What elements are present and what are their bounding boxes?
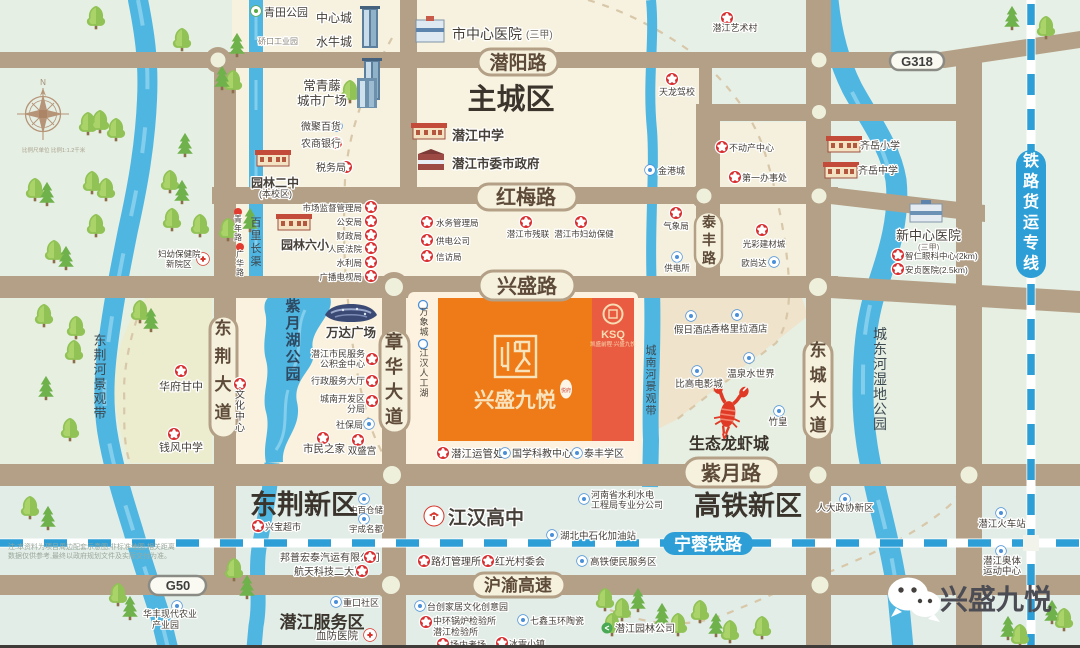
- svg-text:城东河湿地公园: 城东河湿地公园: [873, 326, 887, 432]
- svg-text:红光村委会: 红光村委会: [495, 555, 545, 568]
- svg-text:潜江园林公司: 潜江园林公司: [615, 622, 675, 635]
- svg-text:紫月湖公园: 紫月湖公园: [284, 298, 300, 383]
- svg-text:(本校区): (本校区): [259, 188, 292, 199]
- svg-text:泰丰路: 泰丰路: [701, 214, 717, 266]
- svg-text:台创家居文化创意园: 台创家居文化创意园: [427, 601, 508, 612]
- svg-text:不动产中心: 不动产中心: [729, 142, 774, 153]
- svg-text:数据仅供参考,最终以政府规划文件及实际交付为准。: 数据仅供参考,最终以政府规划文件及实际交付为准。: [8, 551, 171, 560]
- svg-text:潜江市残联: 潜江市残联: [507, 229, 550, 239]
- svg-text:水利局: 水利局: [336, 258, 362, 268]
- svg-text:红梅路: 红梅路: [496, 185, 557, 209]
- svg-text:宇成名都: 宇成名都: [349, 524, 384, 534]
- svg-text:假日酒店: 假日酒店: [674, 324, 712, 336]
- svg-text:工程局专业分公司: 工程局专业分公司: [591, 499, 663, 510]
- svg-text:主城区: 主城区: [467, 83, 554, 116]
- svg-text:宁蓉铁路: 宁蓉铁路: [674, 534, 743, 554]
- svg-text:潜江检验所: 潜江检验所: [433, 626, 478, 637]
- svg-text:N: N: [40, 78, 46, 87]
- svg-text:江汉人工湖: 江汉人工湖: [419, 348, 428, 398]
- svg-text:公积金中心: 公积金中心: [320, 358, 365, 369]
- svg-text:潜阳路: 潜阳路: [489, 51, 547, 74]
- svg-text:比高电影城: 比高电影城: [675, 378, 723, 390]
- svg-text:兴盛九悦: 兴盛九悦: [940, 583, 1052, 615]
- svg-text:新中心医院: 新中心医院: [896, 228, 961, 243]
- svg-text:注:本资料为项目周边配套示意图,非标准地图,相关距离: 注:本资料为项目周边配套示意图,非标准地图,相关距离: [8, 542, 175, 551]
- svg-text:兴盛九悦: 兴盛九悦: [474, 388, 556, 412]
- svg-text:广华路: 广华路: [236, 249, 244, 277]
- svg-text:产业园: 产业园: [152, 619, 179, 630]
- svg-text:潜江市委市政府: 潜江市委市政府: [452, 156, 540, 171]
- svg-text:青田公园: 青田公园: [264, 6, 308, 19]
- svg-text:万象城: 万象城: [419, 307, 428, 337]
- svg-text:妇幼保健院: 妇幼保健院: [158, 249, 201, 259]
- svg-text:光彩建材城: 光彩建材城: [743, 239, 786, 249]
- svg-text:东荆新区: 东荆新区: [250, 489, 358, 520]
- svg-text:广播电视局: 广播电视局: [319, 272, 362, 282]
- svg-text:运动中心: 运动中心: [983, 565, 1022, 577]
- svg-text:国学科教中心: 国学科教中心: [512, 447, 572, 460]
- svg-text:园林六小: 园林六小: [281, 237, 329, 252]
- svg-text:华丰现代农业: 华丰现代农业: [143, 608, 197, 619]
- svg-text:城市广场: 城市广场: [297, 93, 347, 108]
- svg-text:潜江艺术村: 潜江艺术村: [712, 22, 757, 33]
- svg-text:沪渝高速: 沪渝高速: [484, 575, 552, 595]
- svg-text:河南省水利水电: 河南省水利水电: [591, 489, 654, 500]
- svg-text:高铁便民服务区: 高铁便民服务区: [590, 556, 657, 568]
- svg-text:安贞医院(2.5km): 安贞医院(2.5km): [905, 265, 968, 275]
- svg-text:潜江市妇幼保健: 潜江市妇幼保健: [554, 229, 614, 239]
- svg-text:水牛城: 水牛城: [316, 34, 352, 49]
- svg-text:华府甘中: 华府甘中: [159, 379, 203, 393]
- svg-text:供电公司: 供电公司: [436, 236, 470, 246]
- svg-text:天龙驾校: 天龙驾校: [659, 86, 695, 97]
- svg-text:香格里拉酒店: 香格里拉酒店: [710, 323, 767, 335]
- svg-text:泰丰学区: 泰丰学区: [584, 447, 624, 460]
- svg-text:分局: 分局: [347, 404, 365, 414]
- svg-text:竹皇: 竹皇: [768, 416, 787, 428]
- svg-text:比例尺单位 比例1:1.2千米: 比例尺单位 比例1:1.2千米: [22, 146, 86, 154]
- svg-text:双盛宫: 双盛宫: [348, 445, 377, 457]
- svg-text:供电所: 供电所: [664, 263, 690, 273]
- svg-text:紫月路: 紫月路: [701, 461, 762, 485]
- svg-text:微聚百货: 微聚百货: [301, 120, 341, 133]
- svg-text:钱风中学: 钱风中学: [159, 440, 203, 454]
- svg-text:中环锅炉检验所: 中环锅炉检验所: [433, 615, 496, 626]
- svg-text:人大政协新区: 人大政协新区: [816, 502, 874, 514]
- svg-text:万达广场: 万达广场: [325, 325, 376, 340]
- svg-text:高铁新区: 高铁新区: [694, 490, 802, 521]
- svg-text:城南河景观带: 城南河景观带: [646, 344, 657, 417]
- svg-text:硚口工业园: 硚口工业园: [258, 36, 298, 46]
- svg-text:城南开发区: 城南开发区: [320, 393, 365, 404]
- svg-text:农商银行: 农商银行: [301, 137, 341, 150]
- svg-text:路灯管理所: 路灯管理所: [431, 555, 481, 568]
- svg-text:青年路: 青年路: [234, 214, 242, 242]
- svg-text:兴宝超市: 兴宝超市: [265, 521, 301, 532]
- svg-text:生态龙虾城: 生态龙虾城: [689, 434, 769, 453]
- svg-text:潜江火车站: 潜江火车站: [978, 518, 1026, 530]
- svg-text:潜江市民服务: 潜江市民服务: [311, 348, 365, 359]
- svg-text:气象局: 气象局: [663, 221, 689, 231]
- svg-text:齐岳小学: 齐岳小学: [860, 139, 900, 152]
- svg-text:人民法院: 人民法院: [328, 244, 363, 254]
- svg-text:悦府: 悦府: [561, 387, 571, 394]
- svg-text:潜江中学: 潜江中学: [452, 128, 504, 143]
- svg-text:G50: G50: [166, 578, 191, 593]
- svg-text:税务局: 税务局: [316, 161, 346, 174]
- svg-text:重口社区: 重口社区: [343, 597, 379, 608]
- svg-text:园林二中: 园林二中: [251, 175, 299, 190]
- svg-text:社保局: 社保局: [336, 419, 363, 430]
- svg-text:齐岳中学: 齐岳中学: [858, 164, 898, 177]
- svg-text:江汉高中: 江汉高中: [448, 506, 524, 529]
- svg-text:凯盛前程·兴盛九悦: 凯盛前程·兴盛九悦: [590, 340, 636, 348]
- svg-text:金港城: 金港城: [658, 165, 685, 176]
- svg-text:欧尚达: 欧尚达: [741, 258, 767, 268]
- svg-text:中心城: 中心城: [316, 10, 352, 25]
- svg-text:公安局: 公安局: [336, 217, 362, 227]
- svg-text:KSQ: KSQ: [601, 329, 625, 341]
- svg-text:潜江服务区: 潜江服务区: [280, 612, 365, 632]
- svg-text:行政服务大厅: 行政服务大厅: [311, 375, 365, 386]
- svg-text:G318: G318: [901, 54, 933, 69]
- svg-text:水务管理局: 水务管理局: [436, 218, 479, 228]
- svg-text:温泉水世界: 温泉水世界: [727, 368, 775, 380]
- svg-text:七鑫玉环陶瓷: 七鑫玉环陶瓷: [530, 615, 584, 626]
- svg-text:财政局: 财政局: [336, 231, 362, 241]
- svg-text:潜江运管处: 潜江运管处: [451, 447, 504, 460]
- svg-text:常青藤: 常青藤: [303, 79, 341, 93]
- svg-text:第一办事处: 第一办事处: [742, 172, 787, 183]
- svg-text:兴盛路: 兴盛路: [497, 274, 558, 298]
- svg-text:湖北中石化加油站: 湖北中石化加油站: [560, 530, 637, 542]
- svg-text:市民之家: 市民之家: [303, 442, 345, 455]
- svg-text:智仁眼科中心(2km): 智仁眼科中心(2km): [905, 251, 978, 261]
- svg-text:新院区: 新院区: [166, 259, 192, 269]
- svg-text:百里长渠: 百里长渠: [251, 217, 262, 268]
- svg-text:(三甲): (三甲): [526, 30, 553, 41]
- svg-text:市中心医院: 市中心医院: [452, 26, 522, 42]
- svg-text:信访局: 信访局: [436, 252, 462, 262]
- svg-text:航天科技二大队: 航天科技二大队: [294, 565, 364, 578]
- svg-text:文化中心: 文化中心: [235, 388, 245, 434]
- svg-text:市场监督管理局: 市场监督管理局: [302, 203, 362, 213]
- svg-text:东荆河景观带: 东荆河景观带: [93, 333, 106, 421]
